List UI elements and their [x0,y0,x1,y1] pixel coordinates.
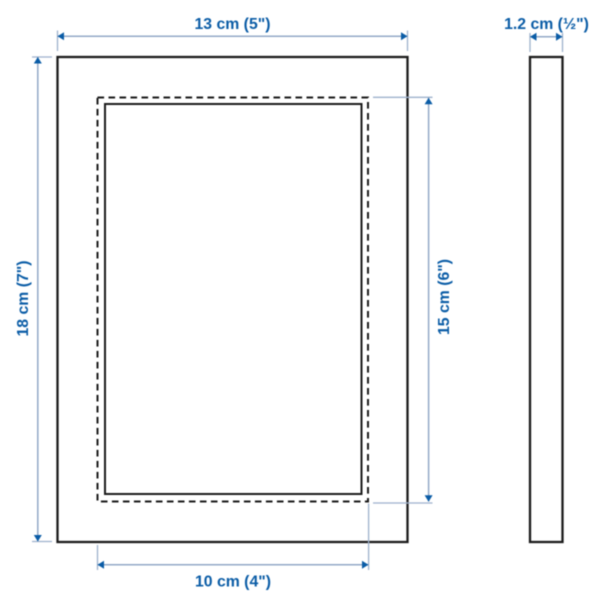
svg-text:18 cm (7"): 18 cm (7") [15,261,32,337]
svg-text:1.2 cm (½"): 1.2 cm (½") [504,16,589,33]
svg-text:10 cm (4"): 10 cm (4") [195,574,271,591]
svg-text:15 cm (6"): 15 cm (6") [436,259,453,335]
svg-text:13 cm (5"): 13 cm (5") [195,16,271,33]
